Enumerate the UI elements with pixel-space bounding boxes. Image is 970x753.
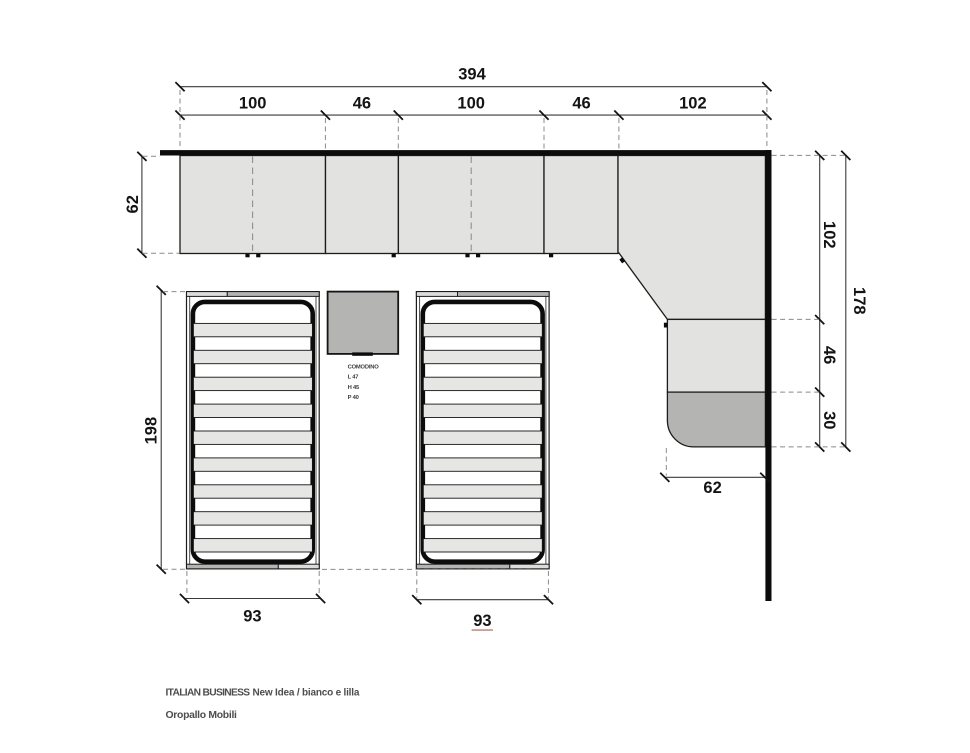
svg-text:100: 100	[239, 94, 267, 112]
svg-text:93: 93	[243, 608, 261, 626]
svg-text:394: 394	[458, 66, 486, 84]
svg-text:COMODINO: COMODINO	[348, 364, 380, 370]
svg-text:ITALIAN BUSINESS: ITALIAN BUSINESS	[166, 687, 251, 698]
svg-text:102: 102	[679, 94, 707, 112]
svg-text:100: 100	[457, 94, 485, 112]
svg-text:102: 102	[820, 221, 838, 249]
svg-text:New Idea / bianco e lilla: New Idea / bianco e lilla	[253, 687, 360, 698]
svg-text:H 45: H 45	[348, 385, 360, 391]
svg-text:93: 93	[473, 612, 491, 630]
svg-text:46: 46	[353, 94, 371, 112]
svg-text:46: 46	[572, 94, 590, 112]
svg-text:198: 198	[143, 417, 161, 445]
svg-text:62: 62	[703, 479, 721, 497]
svg-text:178: 178	[850, 287, 868, 315]
svg-text:L 47: L 47	[348, 375, 359, 381]
svg-text:46: 46	[820, 346, 838, 364]
svg-text:Oropallo Mobili: Oropallo Mobili	[166, 710, 238, 721]
svg-text:62: 62	[124, 195, 142, 213]
svg-text:30: 30	[820, 411, 838, 429]
svg-text:P 40: P 40	[348, 395, 359, 401]
